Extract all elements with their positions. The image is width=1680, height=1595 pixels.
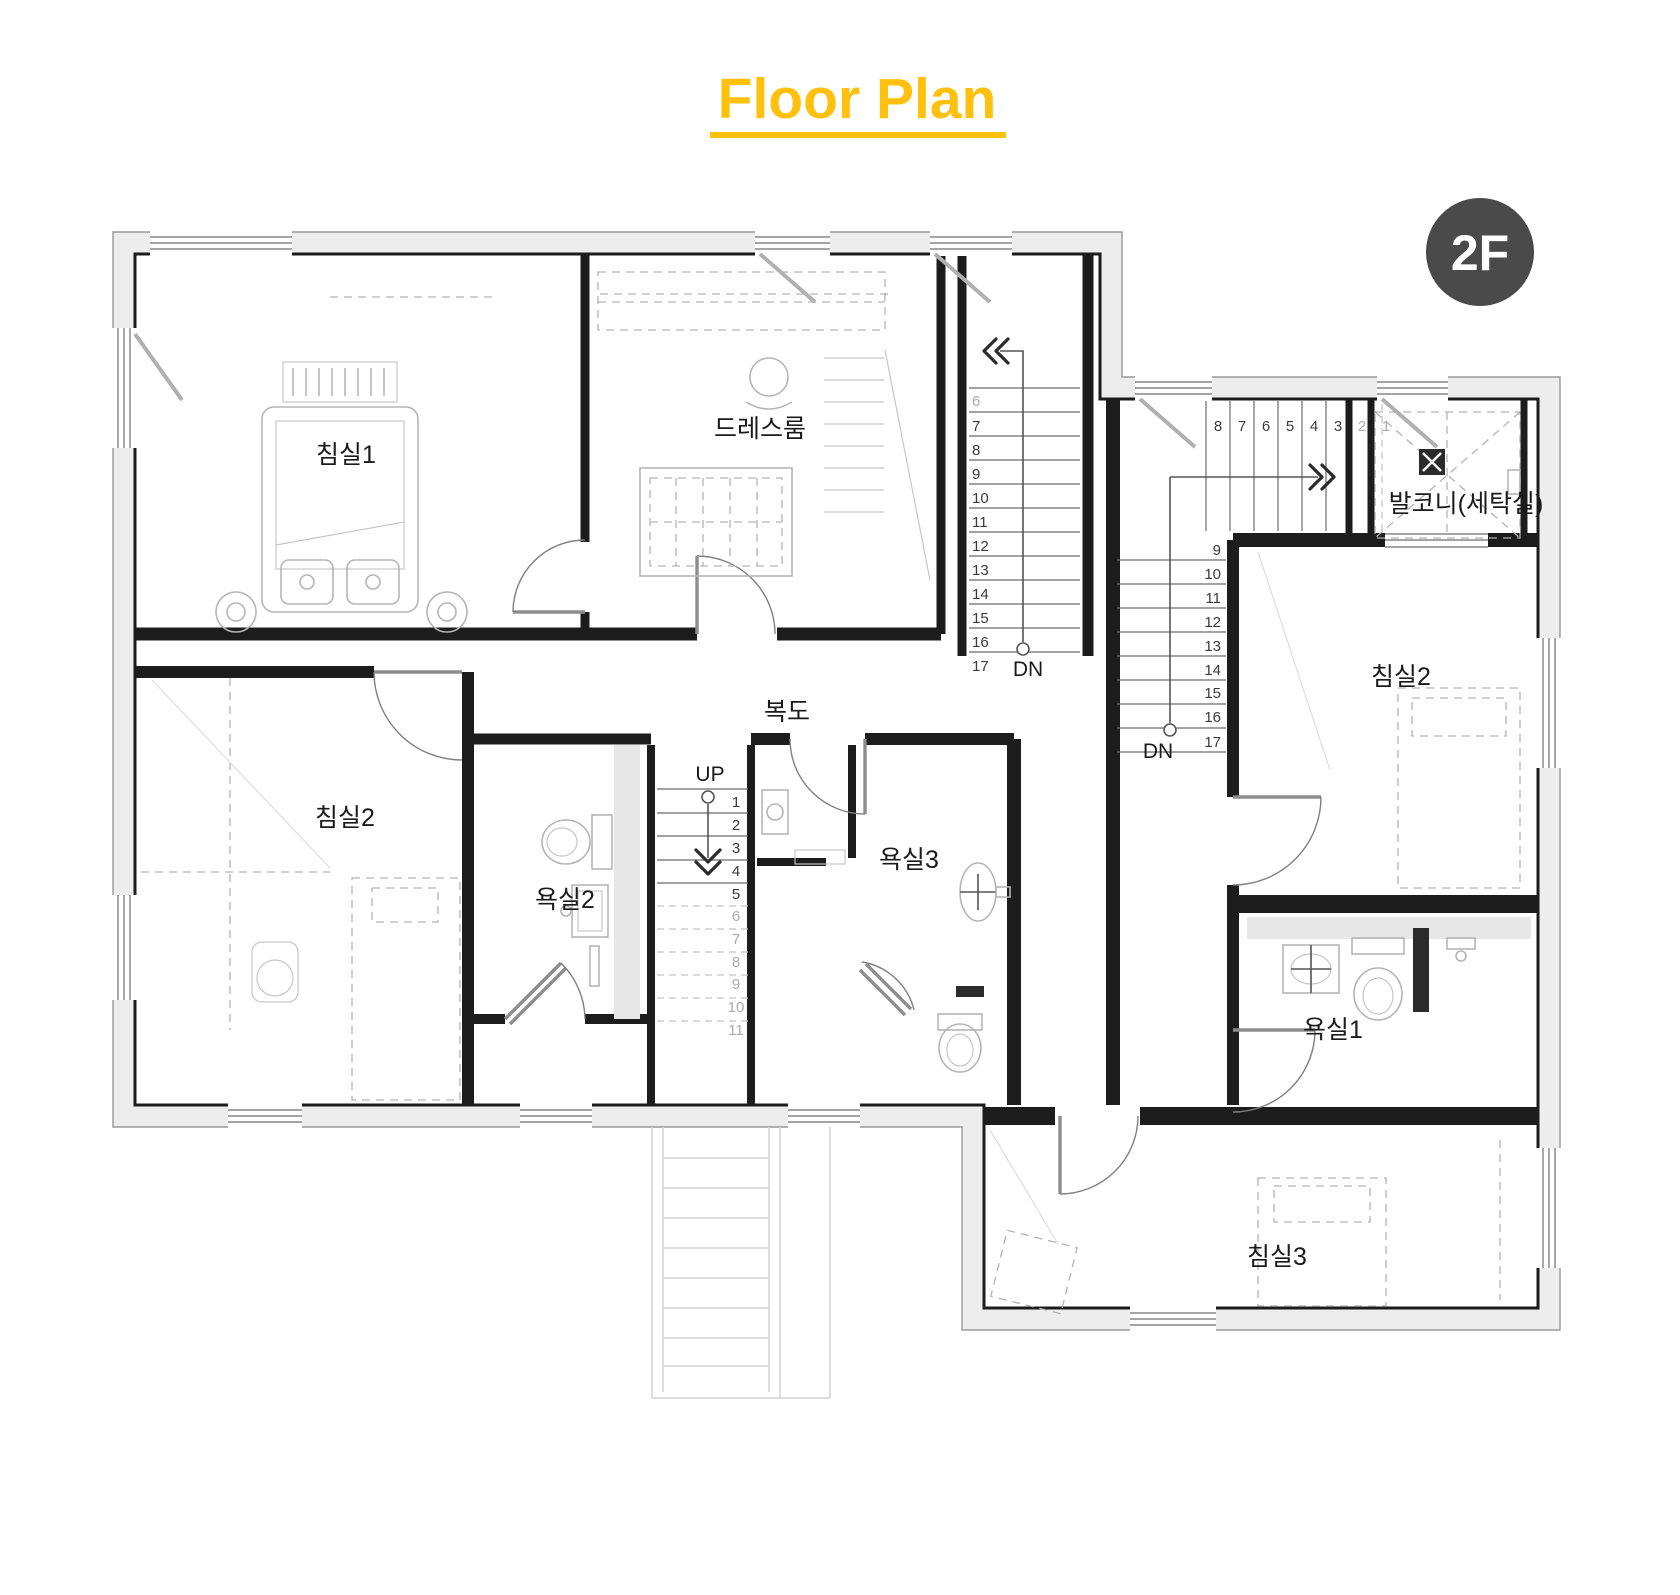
stair-tread-number: 12: [1204, 614, 1221, 631]
stair-tread-number: 8: [732, 954, 740, 971]
stair-tread-number: 11: [728, 1022, 744, 1039]
stair-tread-number: 9: [1213, 542, 1221, 559]
stair-tread-number: 17: [972, 658, 989, 675]
tile-band: [614, 745, 640, 1019]
floor-badge: 2F: [1426, 198, 1534, 306]
towel-bar-icon: [590, 946, 599, 986]
stair-up: 1234567891011UP: [657, 763, 748, 1039]
stair-tread-number: 2: [732, 817, 740, 834]
door-bedroom2-left: [374, 672, 462, 760]
stair-tread-number: 16: [972, 634, 989, 651]
stair-tread-number: 13: [1204, 638, 1221, 655]
room-label-corridor: 복도: [764, 698, 810, 726]
stair-tread-number: 15: [1204, 685, 1221, 702]
stair-tread-number: 10: [728, 999, 745, 1016]
stair-tread-number: 13: [972, 562, 989, 579]
arrow-right-icon: [1322, 465, 1334, 489]
door-bath2: [505, 963, 585, 1024]
room-label-bedroom2-left: 침실2: [315, 804, 375, 832]
mirror-icon: [750, 358, 788, 396]
room-label-bedroom1: 침실1: [316, 441, 376, 469]
sink-icon: [1283, 945, 1339, 993]
stair-tread-number: 4: [732, 863, 740, 880]
tile-band: [1247, 917, 1531, 939]
stair-tread-number: 1: [732, 794, 740, 811]
stair-main: 67891011121314151617DN: [969, 339, 1080, 681]
arrow-down-icon: [696, 862, 720, 874]
door-bedroom3: [1060, 1116, 1138, 1194]
stair-tread-number: 5: [1286, 418, 1294, 435]
door-dressroom: [697, 556, 775, 634]
stair-tread-number: 17: [1204, 734, 1221, 751]
stair-tread-number: 10: [972, 490, 989, 507]
stair-tread-number: 9: [972, 466, 980, 483]
ghost-exterior-stair: [652, 1127, 830, 1398]
stair-direction-label: DN: [1013, 658, 1043, 681]
stair-tread-number: 11: [1205, 590, 1221, 607]
chair-icon: [252, 942, 298, 1002]
room-label-bedroom3: 침실3: [1247, 1243, 1307, 1271]
drain-icon: [1419, 449, 1445, 475]
stair-right-v-numbers: 91011121314151617DN: [1143, 542, 1221, 763]
title-underline: [710, 132, 1006, 138]
stair-tread-number: 16: [1204, 709, 1221, 726]
bathroom1-fixtures: [1247, 917, 1531, 1020]
blanket-icon: [991, 1230, 1077, 1313]
bed-icon: [1258, 552, 1520, 888]
stair-tread-number: 8: [972, 442, 980, 459]
stair-tread-number: 3: [1334, 418, 1342, 435]
room-label-balcony: 발코니(세탁실): [1389, 490, 1544, 518]
stair-node: [1164, 724, 1176, 736]
stair-tread-number: 12: [972, 538, 989, 555]
bed-icon: [990, 1130, 1500, 1314]
room-label-dressroom: 드레스룸: [714, 415, 806, 443]
shower-partition: [1413, 928, 1429, 1012]
floor-badge-label: 2F: [1451, 225, 1509, 281]
bed-icon: [141, 678, 460, 1100]
door-shower-bath3: [860, 962, 914, 1015]
floor-plan-canvas: Floor Plan 2F: [0, 0, 1680, 1595]
stair-tread-number: 5: [732, 886, 740, 903]
page-title: Floor Plan: [718, 67, 997, 131]
faucet-icon: [1447, 938, 1475, 961]
floor-plan-page: Floor Plan 2F: [0, 0, 1680, 1595]
stair-tread-number: 8: [1214, 418, 1222, 435]
stair-tread-number: 14: [972, 586, 989, 603]
stair-tread-number: 10: [1204, 566, 1221, 583]
stair-tread-number: 7: [732, 931, 740, 948]
toilet-icon: [938, 1014, 982, 1072]
door-bedroom1: [513, 540, 585, 612]
stair-tread-number: 6: [732, 908, 740, 925]
stair-tread-number: 6: [972, 393, 980, 410]
stair-node: [1017, 643, 1029, 655]
stair-tread-number: 14: [1204, 662, 1221, 679]
door-bedroom2-right: [1233, 797, 1321, 885]
stair-tread-number: 7: [972, 418, 980, 435]
room-label-bedroom2-right: 침실2: [1371, 663, 1431, 691]
room-label-bath3: 욕실3: [879, 846, 939, 874]
bathtub-icon: [960, 863, 1010, 921]
room-label-bath2: 욕실2: [535, 886, 595, 914]
stair-direction-label: DN: [1143, 740, 1173, 763]
exterior-walls: [113, 232, 1560, 1330]
stair-tread-number: 4: [1310, 418, 1318, 435]
toilet-icon: [1352, 938, 1404, 1020]
stair-tread-number: 1: [1382, 418, 1390, 435]
balcony-fixtures: [1375, 412, 1520, 538]
stair-direction-label: UP: [695, 763, 724, 786]
stair-tread-number: 15: [972, 610, 989, 627]
room-label-bath1: 욕실1: [1303, 1016, 1363, 1044]
stair-tread-number: 2: [1358, 418, 1366, 435]
towel-bar-icon: [956, 986, 984, 997]
stair-node: [702, 791, 714, 803]
stair-tread-number: 9: [732, 976, 740, 993]
arrow-left-icon: [984, 339, 996, 363]
sink-icon: [762, 790, 788, 834]
bathroom3-fixtures: [762, 790, 1010, 1072]
toilet-icon: [542, 815, 612, 869]
stair-tread-number: 7: [1238, 418, 1246, 435]
bed-icon: [216, 362, 467, 632]
stair-tread-number: 3: [732, 840, 740, 857]
page-title-group: Floor Plan: [710, 67, 1006, 138]
stair-tread-number: 6: [1262, 418, 1270, 435]
stair-tread-number: 11: [972, 514, 988, 531]
